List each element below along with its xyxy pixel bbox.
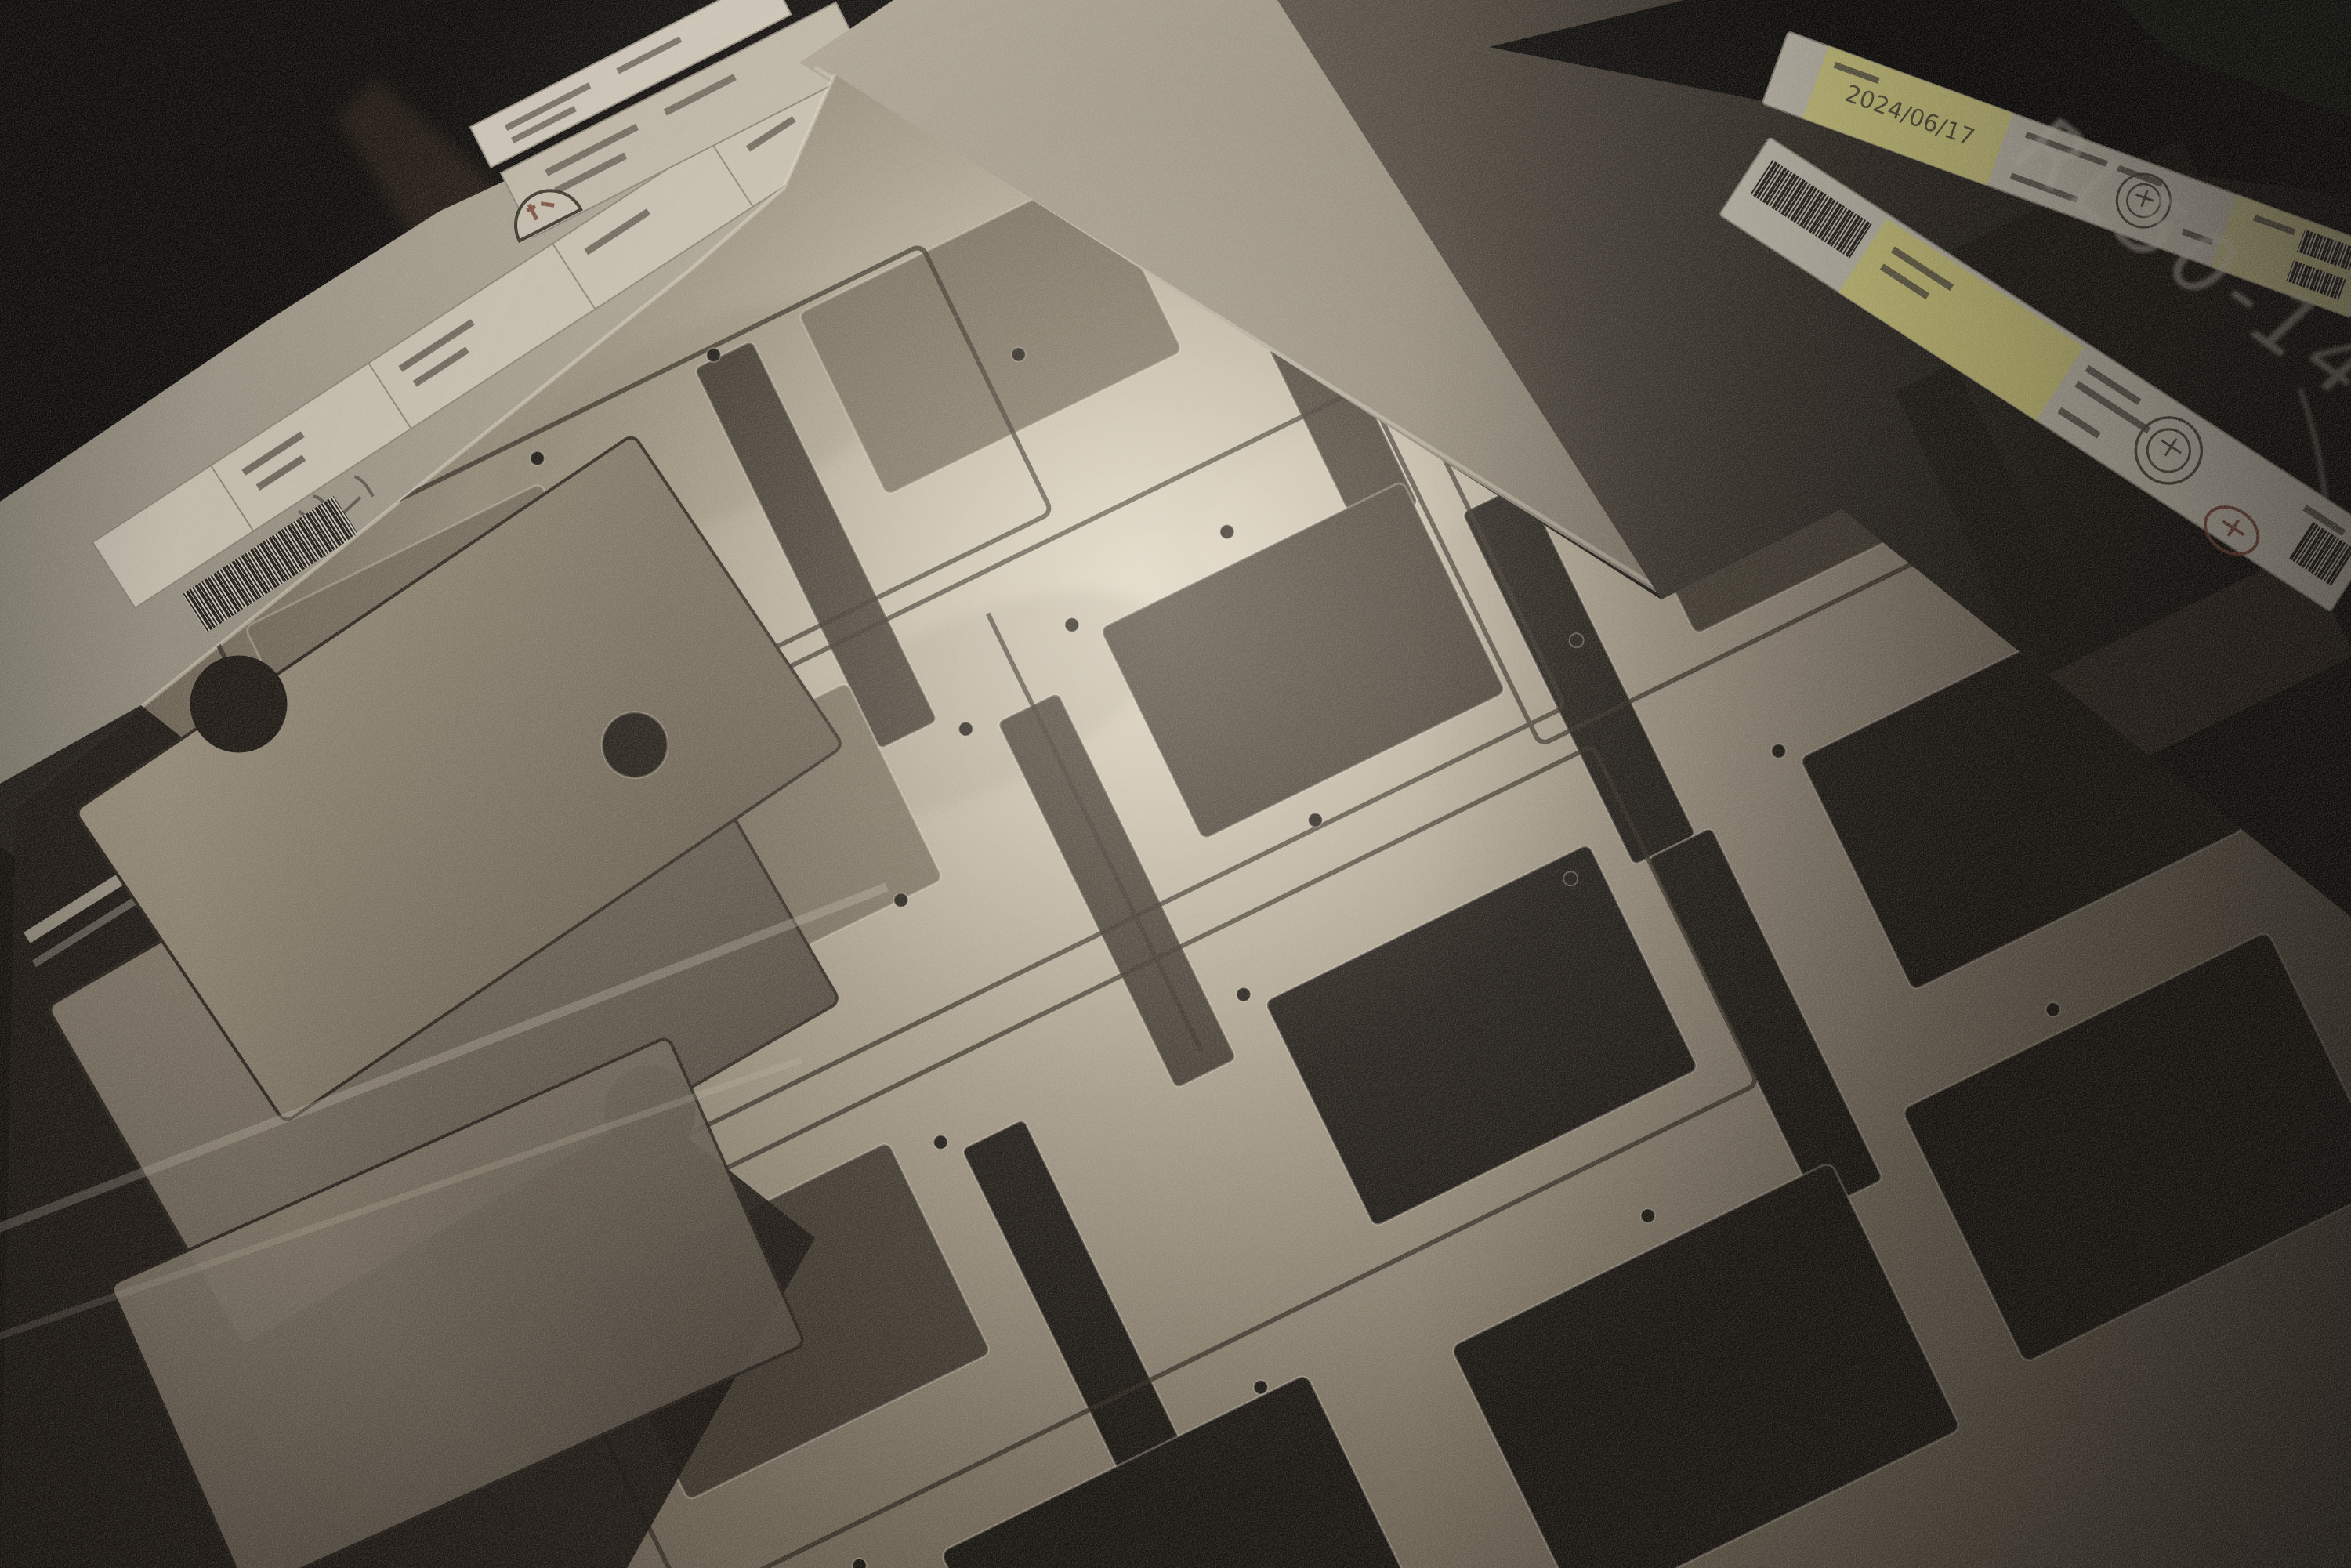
photo-canvas: 2024/06/17 RL50-14 — [0, 0, 2351, 1568]
film-grain — [0, 0, 2351, 1568]
